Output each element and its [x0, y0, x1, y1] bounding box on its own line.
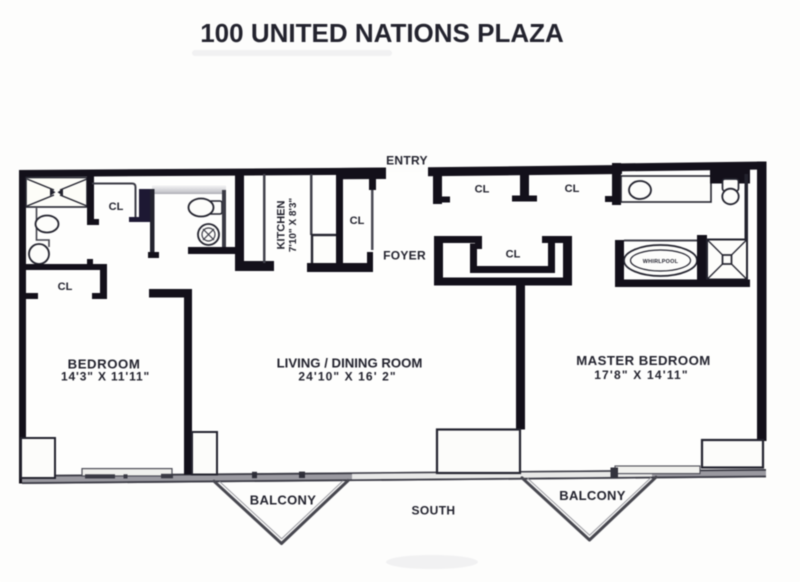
svg-text:FOYER: FOYER — [383, 249, 426, 263]
svg-text:CL: CL — [58, 281, 73, 293]
svg-text:ENTRY: ENTRY — [386, 154, 428, 168]
svg-text:CL: CL — [506, 249, 521, 261]
svg-text:CL: CL — [565, 183, 580, 195]
svg-text:SOUTH: SOUTH — [412, 504, 456, 518]
svg-text:WHIRLPOOL: WHIRLPOOL — [643, 259, 679, 265]
svg-text:MASTER BEDROOM: MASTER BEDROOM — [576, 353, 711, 368]
svg-text:24'10" X 16' 2": 24'10" X 16' 2" — [298, 370, 396, 384]
svg-text:CL: CL — [475, 184, 490, 196]
svg-text:BALCONY: BALCONY — [250, 493, 316, 508]
svg-text:BALCONY: BALCONY — [559, 488, 625, 503]
svg-text:CL: CL — [350, 215, 365, 227]
svg-text:CL: CL — [109, 201, 124, 213]
svg-text:LIVING / DINING ROOM: LIVING / DINING ROOM — [277, 356, 423, 371]
svg-text:17'8" X 14'11": 17'8" X 14'11" — [594, 368, 689, 382]
svg-text:KITCHEN: KITCHEN — [276, 201, 288, 250]
svg-text:7'10" X 8'3": 7'10" X 8'3" — [288, 198, 299, 253]
svg-text:14'3" X 11'11": 14'3" X 11'11" — [61, 370, 150, 384]
svg-text:100 UNITED NATIONS PLAZA: 100 UNITED NATIONS PLAZA — [200, 18, 564, 48]
